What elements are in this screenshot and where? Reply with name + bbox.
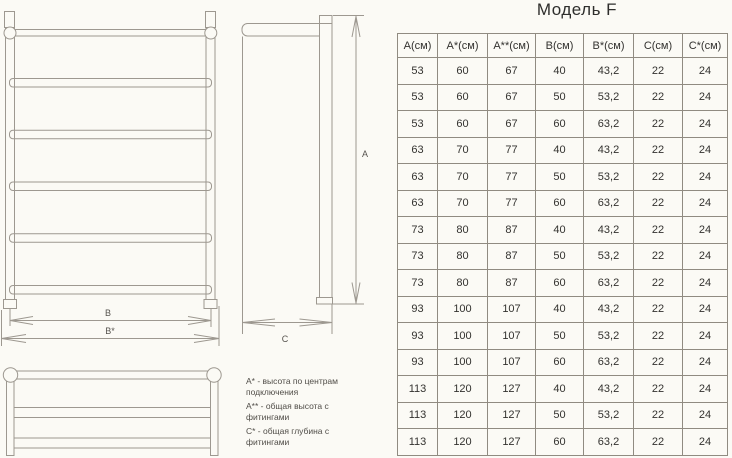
table-cell: 40	[536, 137, 584, 164]
table-cell: 113	[398, 402, 438, 429]
table-cell: 107	[488, 296, 536, 323]
fittings	[5, 12, 216, 28]
table-cell: 70	[438, 164, 488, 191]
table-cell: 43,2	[584, 137, 634, 164]
table-cell: 63	[398, 137, 438, 164]
table-cell: 80	[438, 243, 488, 270]
table-cell: 70	[438, 137, 488, 164]
table-cell: 100	[438, 323, 488, 350]
table-row: 5360675053,22224	[398, 84, 728, 111]
table-cell: 87	[488, 217, 536, 244]
table-row: 931001076063,22224	[398, 349, 728, 376]
table-cell: 53	[398, 84, 438, 111]
side-view-drawing: А С	[235, 0, 370, 350]
table-cell: 50	[536, 323, 584, 350]
table-row: 7380876063,22224	[398, 270, 728, 297]
table-cell: 22	[634, 243, 683, 270]
table-cell: 53,2	[584, 323, 634, 350]
table-cell: 40	[536, 58, 584, 85]
table-row: 7380875053,22224	[398, 243, 728, 270]
table-row: 6370774043,22224	[398, 137, 728, 164]
table-cell: 53,2	[584, 243, 634, 270]
vertical-posts	[6, 28, 216, 300]
table-cell: 77	[488, 137, 536, 164]
legend-item-c-star: С* - общая глубина с фитингами	[246, 426, 359, 448]
table-cell: 53	[398, 58, 438, 85]
table-cell: 60	[536, 270, 584, 297]
table-cell: 22	[634, 296, 683, 323]
table-cell: 60	[438, 84, 488, 111]
table-cell: 80	[438, 270, 488, 297]
table-cell: 113	[398, 429, 438, 456]
table-cell: 107	[488, 323, 536, 350]
table-cell: 107	[488, 349, 536, 376]
table-cell: 120	[438, 429, 488, 456]
post-circles-plan	[3, 368, 221, 382]
table-cell: 24	[683, 270, 728, 297]
table-cell: 73	[398, 270, 438, 297]
table-cell: 127	[488, 376, 536, 403]
post-side	[320, 16, 333, 298]
table-cell: 67	[488, 84, 536, 111]
table-cell: 50	[536, 84, 584, 111]
table-cell: 24	[683, 111, 728, 138]
table-row: 5360674043,22224	[398, 58, 728, 85]
table-cell: 87	[488, 270, 536, 297]
table-cell: 93	[398, 296, 438, 323]
table-cell: 40	[536, 376, 584, 403]
table-cell: 24	[683, 429, 728, 456]
table-row: 6370776063,22224	[398, 190, 728, 217]
table-cell: 22	[634, 270, 683, 297]
table-cell: 100	[438, 349, 488, 376]
table-cell: 22	[634, 323, 683, 350]
table-cell: 24	[683, 296, 728, 323]
table-cell: 22	[634, 137, 683, 164]
table-cell: 120	[438, 376, 488, 403]
top-view-drawing	[0, 358, 235, 458]
table-row: 1131201274043,22224	[398, 376, 728, 403]
table-cell: 63,2	[584, 270, 634, 297]
table-cell: 87	[488, 243, 536, 270]
rungs	[10, 79, 212, 295]
table-cell: 22	[634, 349, 683, 376]
table-cell: 22	[634, 376, 683, 403]
table-cell: 67	[488, 58, 536, 85]
table-cell: 113	[398, 376, 438, 403]
table-cell: 120	[438, 402, 488, 429]
table-cell: 53	[398, 111, 438, 138]
top-rail	[12, 30, 209, 37]
spec-table: А(см)А*(см)А**(см)В(см)В*(см)С(см)С*(см)…	[397, 33, 728, 456]
dimension-b-label: В	[105, 308, 111, 318]
connection-circles	[4, 27, 217, 39]
dimension-a	[333, 16, 364, 305]
front-view-drawing: В В*	[0, 0, 235, 358]
rung-side	[242, 24, 325, 37]
dimension-c	[243, 37, 333, 335]
spec-sheet: В В* А С	[0, 0, 732, 458]
column-header: А(см)	[398, 34, 438, 58]
table-cell: 50	[536, 243, 584, 270]
table-cell: 63,2	[584, 429, 634, 456]
table-cell: 24	[683, 243, 728, 270]
table-cell: 24	[683, 190, 728, 217]
table-row: 931001074043,22224	[398, 296, 728, 323]
table-cell: 40	[536, 217, 584, 244]
table-row: 1131201275053,22224	[398, 402, 728, 429]
table-cell: 24	[683, 164, 728, 191]
legend: А* - высота по центрам подключения А** -…	[246, 376, 359, 451]
table-cell: 22	[634, 217, 683, 244]
table-cell: 127	[488, 402, 536, 429]
table-cell: 22	[634, 84, 683, 111]
column-header: А*(см)	[438, 34, 488, 58]
posts-plan	[7, 382, 219, 456]
table-cell: 127	[488, 429, 536, 456]
table-cell: 93	[398, 349, 438, 376]
table-cell: 60	[536, 429, 584, 456]
column-header: А**(см)	[488, 34, 536, 58]
table-cell: 63	[398, 190, 438, 217]
dimension-c-label: С	[282, 334, 289, 344]
table-cell: 63,2	[584, 111, 634, 138]
table-cell: 22	[634, 58, 683, 85]
table-cell: 50	[536, 164, 584, 191]
table-row: 1131201276063,22224	[398, 429, 728, 456]
column-header: В*(см)	[584, 34, 634, 58]
table-cell: 22	[634, 111, 683, 138]
table-cell: 24	[683, 217, 728, 244]
table-cell: 73	[398, 217, 438, 244]
table-row: 931001075053,22224	[398, 323, 728, 350]
table-cell: 100	[438, 296, 488, 323]
table-cell: 24	[683, 349, 728, 376]
column-header: С(см)	[634, 34, 683, 58]
table-cell: 60	[536, 111, 584, 138]
top-rail-plan	[10, 371, 214, 379]
table-cell: 63,2	[584, 349, 634, 376]
table-row: 7380874043,22224	[398, 217, 728, 244]
table-cell: 53,2	[584, 84, 634, 111]
table-cell: 63	[398, 164, 438, 191]
table-cell: 22	[634, 190, 683, 217]
table-cell: 70	[438, 190, 488, 217]
foot-side	[317, 298, 333, 305]
table-cell: 93	[398, 323, 438, 350]
table-row: 6370775053,22224	[398, 164, 728, 191]
table-cell: 24	[683, 323, 728, 350]
rungs-plan	[14, 408, 211, 449]
table-cell: 77	[488, 164, 536, 191]
page-title: Модель F	[412, 0, 732, 24]
table-cell: 22	[634, 429, 683, 456]
table-cell: 60	[438, 111, 488, 138]
table-row: 5360676063,22224	[398, 111, 728, 138]
dimension-b-star-label: В*	[105, 326, 115, 336]
dimension-a-label: А	[362, 149, 368, 159]
table-cell: 24	[683, 84, 728, 111]
table-cell: 53,2	[584, 402, 634, 429]
table-cell: 43,2	[584, 58, 634, 85]
table-cell: 40	[536, 296, 584, 323]
spec-table-body: 5360674043,222245360675053,2222453606760…	[398, 58, 728, 456]
legend-item-a-double-star: А** - общая высота с фитингами	[246, 401, 359, 423]
column-header: В(см)	[536, 34, 584, 58]
table-cell: 24	[683, 137, 728, 164]
table-cell: 24	[683, 376, 728, 403]
table-cell: 67	[488, 111, 536, 138]
table-cell: 73	[398, 243, 438, 270]
spec-table-header-row: А(см)А*(см)А**(см)В(см)В*(см)С(см)С*(см)	[398, 34, 728, 58]
legend-item-a-star: А* - высота по центрам подключения	[246, 376, 359, 398]
table-cell: 24	[683, 58, 728, 85]
table-cell: 50	[536, 402, 584, 429]
table-cell: 22	[634, 164, 683, 191]
table-cell: 43,2	[584, 217, 634, 244]
table-cell: 63,2	[584, 190, 634, 217]
table-cell: 77	[488, 190, 536, 217]
table-cell: 60	[536, 349, 584, 376]
table-cell: 53,2	[584, 164, 634, 191]
table-cell: 43,2	[584, 296, 634, 323]
table-cell: 60	[438, 58, 488, 85]
column-header: С*(см)	[683, 34, 728, 58]
table-cell: 60	[536, 190, 584, 217]
table-cell: 80	[438, 217, 488, 244]
table-cell: 24	[683, 402, 728, 429]
table-cell: 43,2	[584, 376, 634, 403]
table-cell: 22	[634, 402, 683, 429]
